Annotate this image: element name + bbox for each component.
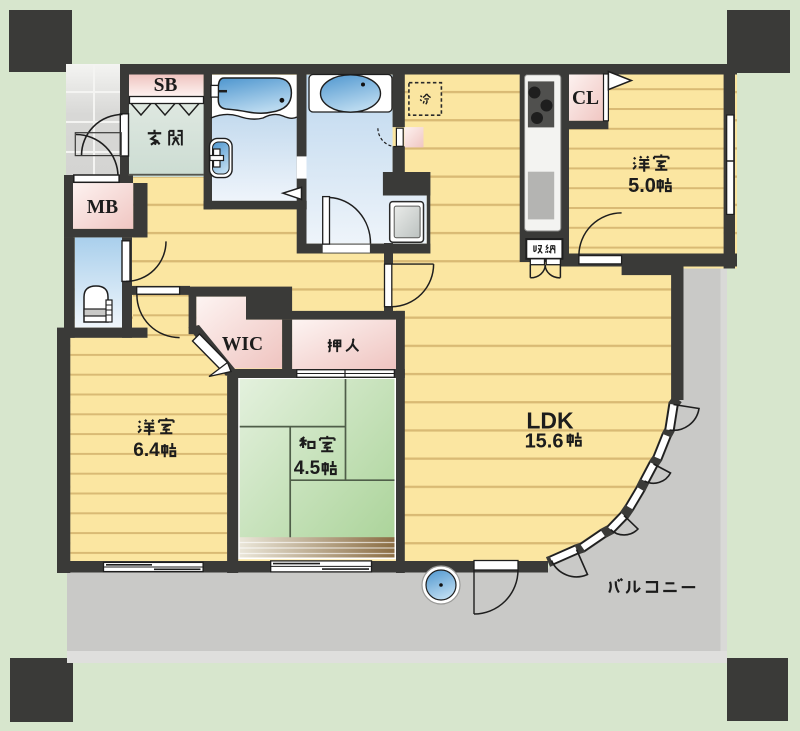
svg-text:SB: SB: [154, 75, 178, 96]
svg-text:5.0: 5.0: [628, 175, 656, 197]
svg-text:6.4: 6.4: [133, 440, 160, 461]
svg-text:CL: CL: [572, 88, 599, 109]
svg-text:MB: MB: [87, 197, 118, 218]
svg-text:15.6: 15.6: [525, 431, 564, 453]
svg-text:4.5: 4.5: [294, 458, 321, 479]
svg-text:WIC: WIC: [222, 334, 263, 355]
